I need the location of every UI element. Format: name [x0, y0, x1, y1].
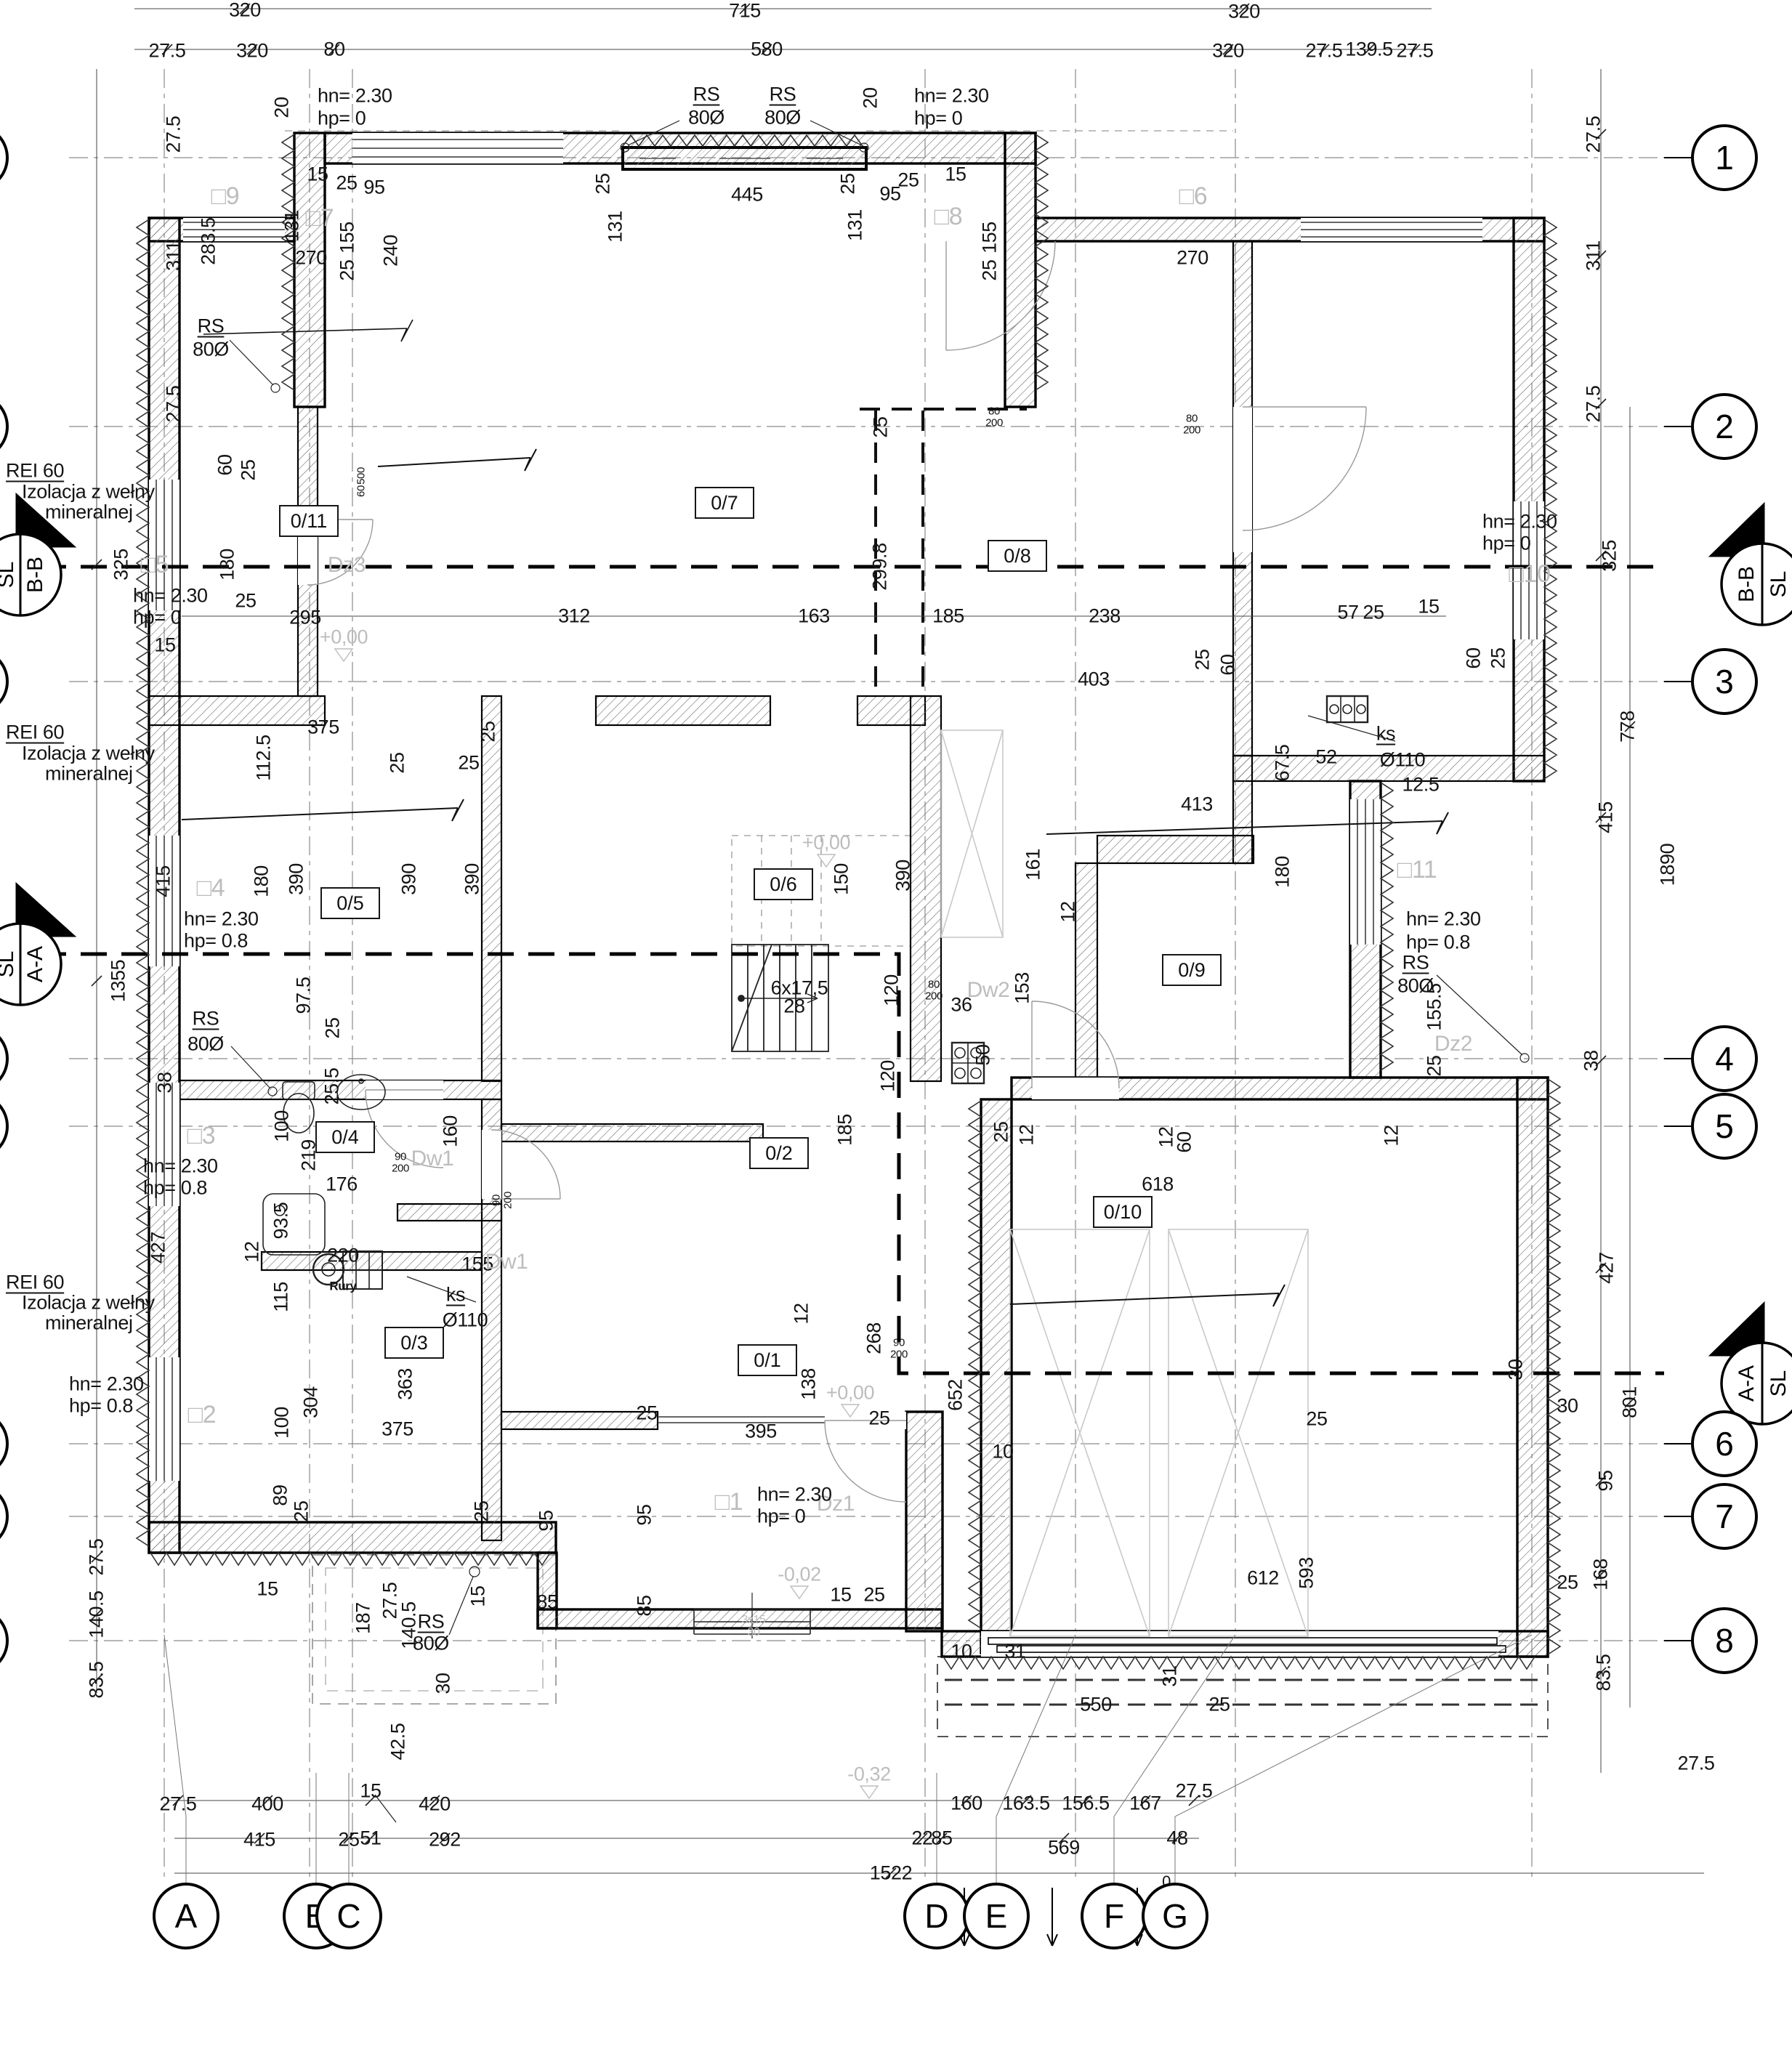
- dimension-label: 180: [218, 549, 238, 581]
- dimension-label: 15: [307, 165, 328, 185]
- dimension-label: 390: [400, 863, 419, 895]
- dimension-label: 120: [882, 974, 902, 1006]
- dimension-label: 15: [830, 1585, 851, 1605]
- annotation-label: ks: [446, 1285, 465, 1305]
- annotation-label: Rury: [329, 1280, 356, 1293]
- dimension-label: 85: [635, 1595, 655, 1616]
- dimension-label: 153: [1013, 972, 1033, 1004]
- dimension-label: 60: [216, 454, 235, 475]
- dimension-label: 30: [1506, 1359, 1526, 1380]
- dimension-label: 80Ø: [413, 1634, 449, 1654]
- annotation-label: hn= 2.30: [318, 86, 392, 106]
- dimension-label: 95: [537, 1510, 557, 1531]
- dimension-label: 25: [1363, 603, 1384, 623]
- dimension-label: 311: [164, 241, 184, 271]
- window: [352, 133, 563, 163]
- grid-bubble-D: D: [903, 1883, 970, 1949]
- dimension-label: 27.5: [1584, 386, 1604, 423]
- dimension-label: 1355: [109, 960, 129, 1002]
- dimension-label: 25: [868, 1409, 889, 1428]
- dimension-label: 320: [229, 1, 261, 20]
- dimension-label: 20: [273, 97, 292, 118]
- dimension-label: 176: [326, 1175, 358, 1195]
- room-label-0/3: 0/3: [384, 1327, 444, 1359]
- dimension-label: 12: [792, 1303, 812, 1324]
- dimension-label: 25: [235, 591, 256, 611]
- dimension-label: 95: [363, 178, 384, 198]
- dimension-label: 115: [272, 1282, 291, 1312]
- svg-text:SL: SL: [1767, 571, 1791, 598]
- dimension-label: 95: [635, 1504, 655, 1525]
- leader-lines: [230, 121, 1529, 1822]
- dimension-label: 156.5: [1062, 1794, 1110, 1814]
- dimension-label: 93.5: [272, 1203, 291, 1240]
- room-label-0/6: 0/6: [754, 868, 813, 900]
- annotation-label: Dw2: [967, 979, 1010, 1001]
- annotation-label: hn= 2.30: [1482, 512, 1557, 532]
- dimension-label: +0,00: [320, 628, 368, 647]
- dimension-label: 25: [871, 416, 891, 437]
- dimension-label: 320: [1228, 2, 1260, 22]
- dimension-label: 155: [338, 222, 358, 254]
- dimension-label: 80: [323, 40, 344, 60]
- dimension-label: +0,00: [802, 833, 850, 853]
- dimension-label: Ø110: [1380, 751, 1425, 770]
- dimension-label: 12: [1017, 1124, 1037, 1145]
- room-label-0/9: 0/9: [1162, 954, 1222, 986]
- dimension-label: 163: [798, 607, 830, 626]
- section-marker-B-B: B-BSL: [1709, 503, 1792, 625]
- dimension-label: □7: [306, 206, 334, 230]
- dimension-label: 25: [1489, 647, 1509, 668]
- dimension-label: 1890: [1658, 844, 1678, 886]
- dimension-label: 569: [1048, 1838, 1080, 1858]
- dimension-label: 320: [1212, 41, 1244, 61]
- dimension-label: 138: [799, 1368, 819, 1400]
- dimension-label: 180: [252, 865, 272, 897]
- grid-bubble-A: A: [153, 1883, 219, 1949]
- dimension-label: □5: [141, 552, 169, 577]
- dimension-label: □10: [1509, 562, 1550, 586]
- dimension-label: 187: [354, 1602, 374, 1634]
- dimension-label: 25: [839, 173, 858, 194]
- floor-plan-canvas: B-BSLB-BSLA-ASLA-ASL 32071532027.5320805…: [0, 0, 1792, 2057]
- dimension-label: 25: [1557, 1573, 1578, 1593]
- dimension-label: 30: [434, 1673, 453, 1694]
- dimension-label: 48: [1166, 1829, 1187, 1848]
- dimension-label: 25: [980, 259, 1000, 280]
- dimension-label: 363: [396, 1368, 416, 1400]
- dimension-label: 550: [1080, 1695, 1112, 1715]
- dimension-label: □9: [211, 184, 240, 209]
- room-label-0/10: 0/10: [1093, 1196, 1153, 1228]
- dimension-label: 20: [861, 87, 881, 108]
- dimension-label: 150: [832, 863, 852, 895]
- dimension-label: 25: [479, 721, 499, 742]
- dimension-label: 100: [273, 1110, 292, 1142]
- dimension-label: 27.5: [149, 41, 186, 61]
- dimension-label: 22: [911, 1829, 932, 1848]
- windows: [149, 133, 1544, 1481]
- dimension-label: 270: [1176, 248, 1208, 268]
- dimension-label: 30: [1557, 1397, 1578, 1416]
- grid-bubble-C: C: [315, 1883, 382, 1949]
- dimension-label: 38: [1582, 1050, 1602, 1071]
- dimension-label: 31: [1161, 1665, 1180, 1686]
- dimension-label: 25: [1193, 649, 1213, 670]
- svg-text:B-B: B-B: [1735, 566, 1759, 602]
- dimension-label: 375: [382, 1420, 413, 1439]
- dimension-label: 200: [925, 991, 943, 1002]
- dimension-label: 10: [992, 1442, 1013, 1462]
- dimension-label: Ø110: [443, 1311, 488, 1330]
- dimension-label: 15: [945, 165, 966, 185]
- dimension-label: 60: [356, 485, 367, 497]
- room-label-0/8: 0/8: [988, 540, 1047, 572]
- dimension-label: 51: [360, 1829, 381, 1848]
- dimension-label: 185: [836, 1114, 855, 1146]
- dimension-label: 25: [338, 1830, 359, 1850]
- dimension-label: 580: [751, 40, 783, 60]
- annotation-label: 3x15: [741, 1615, 765, 1626]
- svg-text:A-A: A-A: [23, 946, 47, 982]
- dimension-label: 90: [893, 1338, 905, 1349]
- dimension-label: 38: [156, 1072, 175, 1093]
- window: [1350, 799, 1381, 945]
- dimension-label: +0,00: [826, 1383, 874, 1403]
- dimension-label: 42.5: [389, 1723, 408, 1761]
- dimension-label: 25: [336, 174, 357, 193]
- dimension-label: 80Ø: [688, 108, 725, 128]
- annotation-label: hp= 0: [133, 608, 181, 628]
- dimension-label: 89: [271, 1484, 291, 1506]
- annotation-label: hn= 2.30: [184, 910, 259, 929]
- annotation-label: hp= 0: [757, 1507, 805, 1527]
- dimension-label: 12: [243, 1241, 262, 1262]
- annotation-label: hp= 0: [1482, 534, 1530, 554]
- grid-bubble-8: 8: [1691, 1607, 1758, 1674]
- dimension-label: 420: [419, 1795, 451, 1814]
- dimension-label: 131: [846, 209, 865, 241]
- svg-text:A-A: A-A: [1735, 1365, 1759, 1402]
- dimension-label: 238: [1089, 607, 1121, 626]
- dimension-label: 445: [731, 185, 763, 205]
- dimension-label: 161: [1024, 849, 1044, 881]
- grid-bubble-E: E: [963, 1883, 1030, 1949]
- dimension-label: 10: [951, 1642, 972, 1662]
- annotation-label: mineralnej: [45, 764, 133, 784]
- dimension-label: -0,02: [778, 1565, 821, 1585]
- dimension-label: 292: [429, 1830, 461, 1850]
- svg-text:SL: SL: [1767, 1370, 1791, 1397]
- dimension-label: 403: [1078, 670, 1110, 690]
- annotation-label: Izolacja z wełny: [22, 1293, 155, 1313]
- dimension-label: 220: [327, 1246, 359, 1266]
- dimension-label: 12: [1382, 1125, 1402, 1146]
- dimension-label: 25: [458, 753, 479, 773]
- room-label-0/5: 0/5: [320, 887, 380, 919]
- dimension-label: □4: [197, 876, 225, 900]
- dimension-label: 27.5: [164, 386, 184, 423]
- dimension-label: □11: [1397, 857, 1437, 882]
- dimension-label: 15: [469, 1585, 488, 1607]
- dimension-label: 400: [251, 1795, 283, 1814]
- dimension-label: 390: [894, 860, 913, 892]
- dimension-label: 268: [865, 1322, 884, 1354]
- dimension-label: 320: [236, 41, 268, 61]
- dimension-label: 415: [1597, 801, 1616, 833]
- dimension-label: 80Ø: [1397, 977, 1434, 996]
- dimension-label: 295: [289, 608, 321, 628]
- dimension-label: 200: [1183, 425, 1200, 436]
- grid-bubble-7: 7: [1691, 1483, 1758, 1550]
- dimension-label: 27.5: [87, 1539, 107, 1576]
- dimension-label: 160: [951, 1794, 982, 1814]
- dimension-label: 57: [1337, 603, 1358, 623]
- dimension-label: 25: [594, 173, 613, 194]
- dimension-label: 27.5: [381, 1583, 400, 1620]
- dimension-label: 80Ø: [764, 108, 801, 128]
- dimension-label: 200: [503, 1192, 514, 1209]
- dimension-label: 97.5: [294, 977, 314, 1014]
- dimension-label: 83.5: [1594, 1654, 1614, 1692]
- dimension-label: 200: [985, 418, 1003, 429]
- annotation-label: RS: [1402, 953, 1429, 973]
- dimension-label: 652: [946, 1379, 966, 1411]
- dimension-label: 27.5: [164, 116, 184, 153]
- chimney-block: [1327, 696, 1368, 722]
- annotation-label: REI 60: [6, 1273, 64, 1293]
- dimension-label: 139.5: [1345, 40, 1393, 60]
- dimension-label: 325: [1600, 540, 1620, 572]
- dimension-label: 60: [1175, 1131, 1195, 1152]
- dimension-label: 12: [1059, 901, 1078, 922]
- dimension-label: 27.5: [1678, 1754, 1715, 1774]
- annotation-label: hp= 0.8: [1406, 933, 1470, 953]
- dimension-label: 612: [1247, 1569, 1279, 1588]
- dimension-label: 80: [928, 979, 940, 990]
- dimension-label: 60: [1219, 654, 1238, 675]
- dimension-label: 15: [257, 1580, 278, 1599]
- dimension-label: 180: [1273, 856, 1293, 888]
- dimension-label: □6: [1179, 184, 1208, 209]
- dimension-label: 85: [536, 1593, 557, 1612]
- extent-lines: [182, 320, 1448, 1306]
- dimension-label: □3: [187, 1123, 216, 1148]
- grid-bubble-1: 1: [1691, 124, 1758, 191]
- dimension-label: 618: [1142, 1175, 1174, 1195]
- annotation-label: REI 60: [6, 461, 64, 481]
- dimension-label: 60: [1464, 647, 1484, 668]
- dimension-label: 240: [382, 235, 401, 267]
- dimension-label: 168: [1591, 1559, 1611, 1591]
- dimension-label: 312: [558, 607, 590, 626]
- dimension-label: □8: [935, 204, 963, 229]
- dimension-label: 140.5: [87, 1591, 107, 1638]
- annotation-label: mineralnej: [45, 503, 133, 522]
- dimension-label: 120: [879, 1060, 898, 1092]
- dimension-label: 52: [1315, 748, 1336, 767]
- section-marker-A-A: A-ASL: [1709, 1302, 1792, 1424]
- room-label-0/4: 0/4: [315, 1121, 375, 1153]
- dimension-label: 100: [273, 1407, 292, 1439]
- room-label-0/7: 0/7: [695, 487, 754, 519]
- dimension-label: 67.5: [1273, 745, 1293, 782]
- annotation-label: hp= 0: [914, 109, 962, 129]
- dimension-label: 95: [1597, 1470, 1616, 1491]
- dimension-label: 427: [1597, 1252, 1617, 1284]
- grid-bubble-F: F: [1081, 1883, 1147, 1949]
- dimension-label: 15: [154, 636, 175, 655]
- dimension-label: 27.5: [1306, 41, 1343, 61]
- dimension-label: 25.5: [323, 1068, 342, 1105]
- dimension-label: 163.5: [1002, 1794, 1050, 1814]
- dimension-label: 390: [287, 863, 307, 895]
- dimension-label: 311: [1584, 241, 1604, 271]
- dimension-label: 25: [338, 259, 358, 280]
- dimension-label: 80Ø: [193, 340, 229, 360]
- roller-shutter-lintel: [623, 147, 866, 169]
- annotation-label: hn= 2.30: [914, 86, 989, 106]
- annotation-label: Dz3: [328, 554, 366, 576]
- dimension-label: 283.5: [199, 217, 219, 265]
- dimension-label: 27.5: [1584, 116, 1604, 153]
- dimension-label: 155: [980, 222, 1000, 254]
- annotation-label: hp= 0.8: [69, 1397, 133, 1416]
- dimension-label: 83.5: [87, 1662, 107, 1699]
- dimension-label: 80: [988, 406, 1000, 417]
- dimension-label: 15: [360, 1782, 381, 1801]
- annotation-label: Izolacja z wełny: [22, 744, 155, 764]
- annotation-label: hp= 0: [318, 109, 366, 129]
- window: [149, 1357, 179, 1481]
- dimension-label: 160: [441, 1115, 461, 1147]
- dimension-label: 25: [239, 459, 259, 480]
- annotation-label: RS: [198, 317, 225, 336]
- dimension-label: 12.5: [1402, 775, 1440, 795]
- dimension-label: 90: [491, 1195, 502, 1206]
- svg-text:SL: SL: [0, 562, 18, 589]
- annotation-label: hn= 2.30: [757, 1485, 832, 1505]
- dimension-label: 593: [1297, 1557, 1317, 1589]
- dimension-label: 325: [112, 549, 132, 581]
- dimension-label: 25: [388, 752, 408, 773]
- grid-bubble-5: 5: [1691, 1093, 1758, 1160]
- dimension-label: 27.5: [160, 1795, 197, 1814]
- annotation-label: RS: [193, 1009, 219, 1029]
- dimension-label: 25: [897, 171, 919, 190]
- window: [1301, 218, 1482, 241]
- dimension-label: 25: [636, 1404, 657, 1423]
- dimension-label: 801: [1621, 1386, 1640, 1418]
- dimension-label: 167: [1129, 1794, 1161, 1814]
- dimension-label: 1522: [870, 1864, 912, 1883]
- room-label-0/11: 0/11: [279, 505, 339, 537]
- dimension-label: 27.5: [1397, 41, 1434, 61]
- dimension-label: 395: [745, 1422, 777, 1442]
- annotation-label: Dw1: [411, 1148, 454, 1170]
- annotation-label: ks: [1376, 724, 1395, 744]
- dimension-label: 200: [392, 1163, 409, 1174]
- dimension-label: 375: [307, 718, 339, 737]
- dimension-label: 415: [243, 1830, 275, 1850]
- dimension-label: 25: [863, 1585, 884, 1605]
- dimension-label: 85: [931, 1829, 952, 1848]
- dimension-label: 715: [729, 1, 761, 21]
- dimension-label: 25: [1425, 1055, 1445, 1076]
- dimension-label: 25: [992, 1121, 1012, 1142]
- dimension-label: 200: [890, 1349, 908, 1360]
- dimension-label: 25: [292, 1500, 312, 1521]
- annotation-label: mineralnej: [45, 1314, 133, 1333]
- dimension-label: 25: [1208, 1695, 1230, 1715]
- annotation-label: hp= 0.8: [184, 931, 248, 951]
- dimension-label: 25: [323, 1017, 343, 1038]
- dimension-label: 50: [974, 1044, 993, 1065]
- dimension-label: 413: [1181, 795, 1213, 815]
- dimension-label: 427: [149, 1232, 169, 1264]
- dimension-label: 80: [1186, 413, 1198, 424]
- grid-bubble-4: 4: [1691, 1025, 1758, 1092]
- dimension-label: 778: [1618, 711, 1638, 743]
- dimension-label: 304: [302, 1386, 321, 1418]
- room-label-0/1: 0/1: [738, 1344, 797, 1376]
- dimension-label: □1: [715, 1490, 743, 1514]
- grid-bubble-6: 6: [1691, 1410, 1758, 1477]
- annotation-label: hn= 2.30: [1406, 910, 1481, 929]
- annotation-label: Izolacja z wełny: [22, 482, 155, 502]
- dimension-label: 415: [154, 865, 174, 897]
- annotation-label: RS: [693, 85, 720, 105]
- annotation-label: hp= 0.8: [143, 1179, 207, 1198]
- dimension-label: 15: [1418, 597, 1439, 617]
- grid-bubble-2: 2: [1691, 393, 1758, 460]
- dimension-label: 131: [283, 210, 302, 242]
- entry-glazing: [658, 1417, 825, 1423]
- dimension-label: 27.5: [1176, 1782, 1213, 1801]
- window: [149, 836, 179, 966]
- svg-text:SL: SL: [0, 951, 18, 978]
- annotation-label: RS: [770, 85, 796, 105]
- dimension-label: 30: [748, 1627, 760, 1638]
- annotation-label: hn= 2.30: [69, 1375, 144, 1394]
- annotation-label: REI 60: [6, 723, 64, 743]
- dimension-label: 500: [356, 467, 367, 485]
- dimension-label: -0,32: [847, 1765, 891, 1785]
- dimension-label: 25: [472, 1500, 492, 1521]
- annotation-label: Dw1: [485, 1251, 528, 1273]
- dimension-label: 112.5: [254, 735, 274, 781]
- annotation-label: hn= 2.30: [143, 1157, 218, 1176]
- svg-text:B-B: B-B: [23, 557, 47, 593]
- annotation-label: Dz2: [1434, 1033, 1472, 1055]
- annotation-label: RS: [418, 1612, 445, 1632]
- dimension-label: 25: [1306, 1410, 1327, 1429]
- annotation-label: hn= 2.30: [133, 586, 208, 606]
- dimension-label: 31: [1004, 1642, 1025, 1662]
- dimension-label: 270: [295, 248, 327, 268]
- section-marker-A-A: A-ASL: [0, 883, 76, 1005]
- dimension-label: 299.8: [871, 543, 890, 591]
- grid-bubble-3: 3: [1691, 648, 1758, 715]
- room-label-0/2: 0/2: [749, 1137, 809, 1169]
- plan-graphics: B-BSLB-BSLA-ASLA-ASL: [0, 0, 1792, 2057]
- grid-bubble-G: G: [1142, 1883, 1208, 1949]
- dimension-label: 390: [463, 863, 483, 895]
- garage-door: [981, 1631, 1506, 1657]
- dimension-label: 131: [606, 211, 626, 243]
- dimension-label: □2: [188, 1402, 217, 1427]
